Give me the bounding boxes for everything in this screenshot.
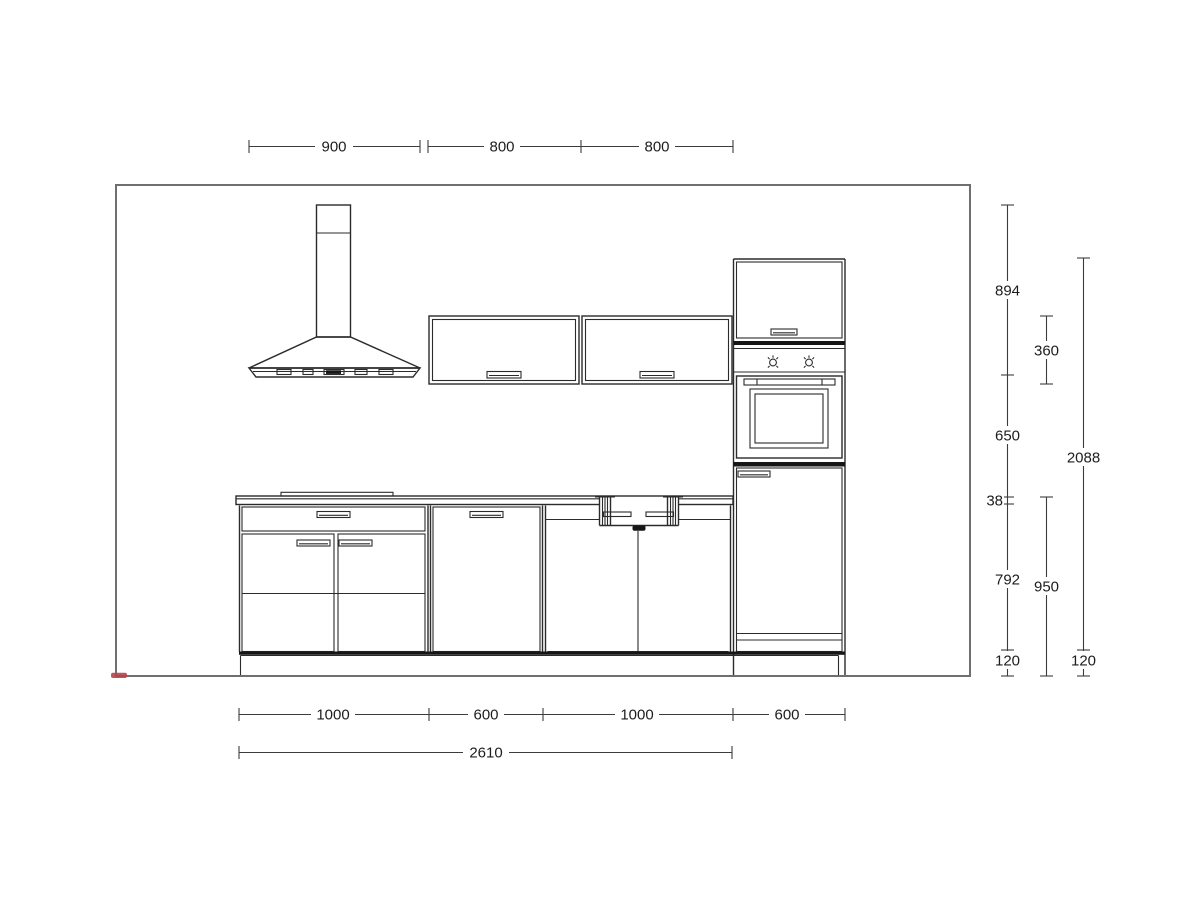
dim-label-base3-width: 1000 [620,707,653,724]
dim-label-worktop-height: 950 [1034,579,1059,596]
wall-cabinet-left-body [429,316,579,384]
dimension-right-mid: 360 950 [1027,316,1066,676]
tall-cabinet-upper-door [737,262,843,338]
sink-cavity [600,498,678,526]
base2-door-handle [470,512,503,518]
dim-label-tallcab-width: 600 [774,707,799,724]
hood-chimney [317,205,351,337]
kitchen-sink [595,497,683,531]
base1-left-door-handle [297,540,330,546]
base1-drawer-front [242,507,425,531]
base1-drawer-handle [317,512,350,518]
oven-handle-bar [744,379,835,385]
dim-label-hood-height: 894 [995,283,1020,300]
range-hood [249,205,420,377]
base-shadow-band [239,652,845,655]
dim-label-plinth-height: 120 [995,653,1020,670]
dimension-right-heights: 894 650 38 792 120 [978,205,1027,676]
oven-frame [737,376,843,458]
oven-window-inner [755,394,823,443]
dim-label-run-total: 2610 [469,745,502,762]
dim-label-wallcab-left-width: 800 [489,139,514,156]
wall-start-marker [111,673,127,678]
tall-cabinet-shadow-band [734,462,846,467]
dim-label-worktop-thickness: 38 [986,493,1003,510]
plinth [239,652,845,676]
base1-right-door [338,534,425,652]
dim-label-base-front-height: 792 [995,572,1020,589]
wall-cabinet-left-handle [487,372,521,379]
oven-knob-right [804,355,814,367]
tall-oven-cabinet [734,259,846,675]
dim-label-tallcab-height: 2088 [1067,450,1100,467]
dimension-right-overall: 2088 120 [1060,258,1107,676]
dim-label-wallcab-height: 360 [1034,343,1059,360]
wall-cabinet-right [582,316,732,384]
dimension-bottom-segments: 1000 600 1000 600 [239,705,845,724]
dimension-bottom-total: 2610 [239,743,732,762]
tall-cabinet-lower-door [737,468,843,652]
oven-window-outer [750,389,828,448]
tall-cabinet-upper-handle [771,329,797,335]
tall-cabinet-lower-handle [738,471,770,477]
kitchen-elevation-drawing: 900 800 800 1000 600 1000 600 2610 [0,0,1200,900]
base-cabinet-door-unit [431,506,543,653]
base2-door [433,507,540,652]
dim-label-hood-width: 900 [321,139,346,156]
base1-right-door-handle [339,540,372,546]
base-cabinet-drawer-unit [240,506,429,653]
hood-canopy [249,337,420,368]
sink-drain [633,526,646,531]
base1-left-door [242,534,334,652]
dim-label-base1-width: 1000 [316,707,349,724]
drawing-canvas: 900 800 800 1000 600 1000 600 2610 [0,0,1200,900]
oven-knob-left [768,355,778,367]
wall-cabinet-left [429,316,579,384]
dim-label-hood-clearance: 650 [995,428,1020,445]
tall-cabinet-shadow-band [734,341,846,345]
hood-filter-dark [326,370,341,374]
dim-label-tallcab-plinth: 120 [1071,653,1096,670]
dim-label-base2-width: 600 [473,707,498,724]
built-in-oven [737,376,843,458]
wall-cabinet-right-handle [640,372,674,379]
dim-label-wallcab-right-width: 800 [644,139,669,156]
wall-cabinet-right-body [582,316,732,384]
dimension-top: 900 800 800 [249,137,733,156]
